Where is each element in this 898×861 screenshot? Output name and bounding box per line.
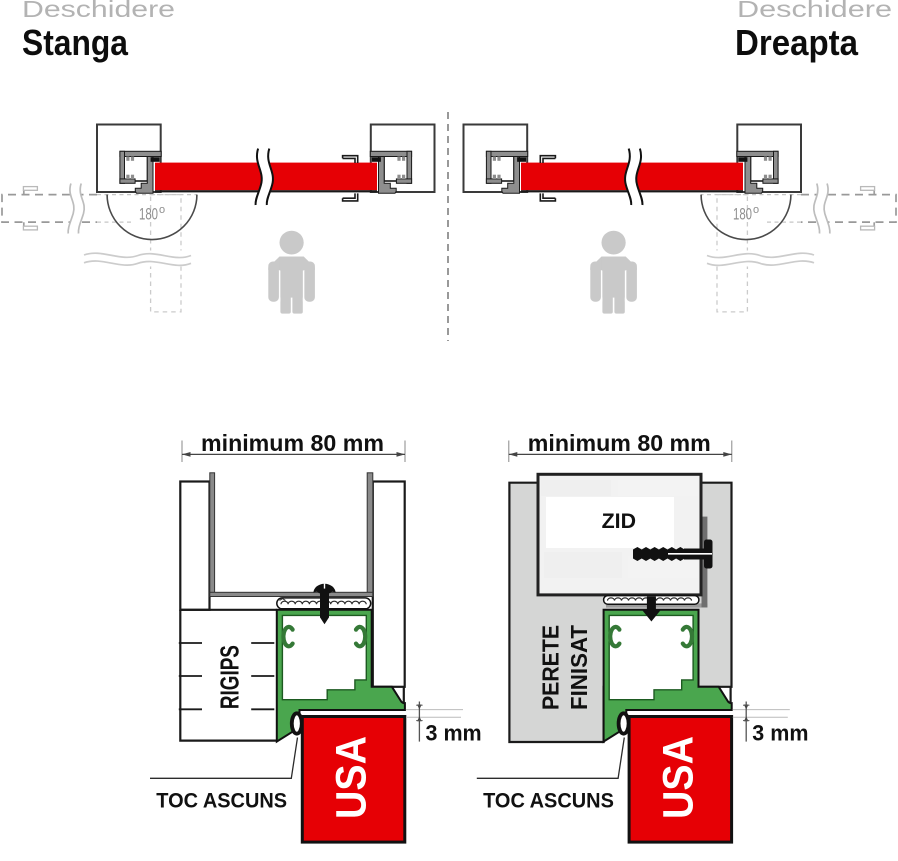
svg-text:Deschidere: Deschidere: [22, 0, 175, 22]
svg-text:PERETE: PERETE: [538, 625, 564, 710]
svg-text:Deschidere: Deschidere: [737, 0, 892, 22]
svg-text:FINISAT: FINISAT: [566, 625, 592, 710]
svg-text:RIGIPS: RIGIPS: [215, 645, 245, 709]
svg-text:Stanga: Stanga: [22, 22, 129, 63]
svg-text:180o: 180o: [733, 204, 759, 224]
svg-text:180o: 180o: [139, 204, 165, 224]
svg-text:ZID: ZID: [602, 510, 636, 533]
svg-text:Dreapta: Dreapta: [735, 22, 859, 63]
